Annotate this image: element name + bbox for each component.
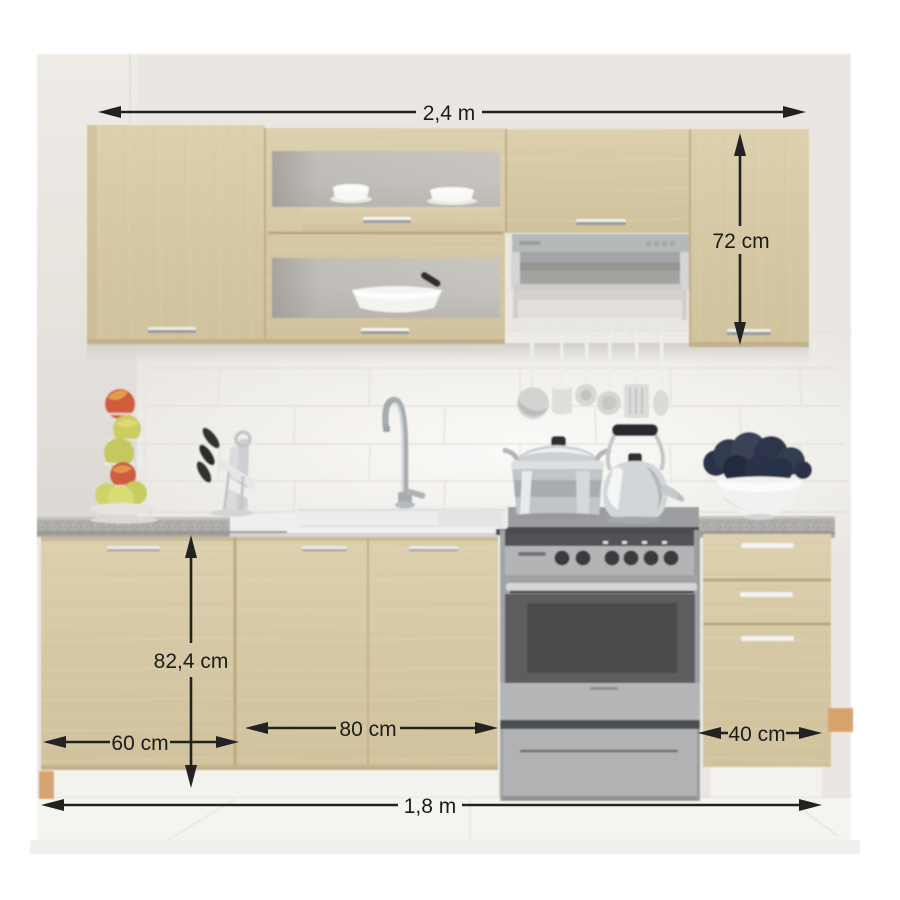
svg-text:40 cm: 40 cm bbox=[728, 723, 785, 746]
svg-text:60 cm: 60 cm bbox=[111, 732, 168, 755]
svg-text:82,4 cm: 82,4 cm bbox=[154, 650, 229, 673]
svg-text:80 cm: 80 cm bbox=[339, 718, 396, 741]
svg-text:1,8 m: 1,8 m bbox=[404, 795, 457, 818]
svg-text:72 cm: 72 cm bbox=[712, 230, 769, 253]
svg-text:2,4 m: 2,4 m bbox=[423, 102, 476, 125]
